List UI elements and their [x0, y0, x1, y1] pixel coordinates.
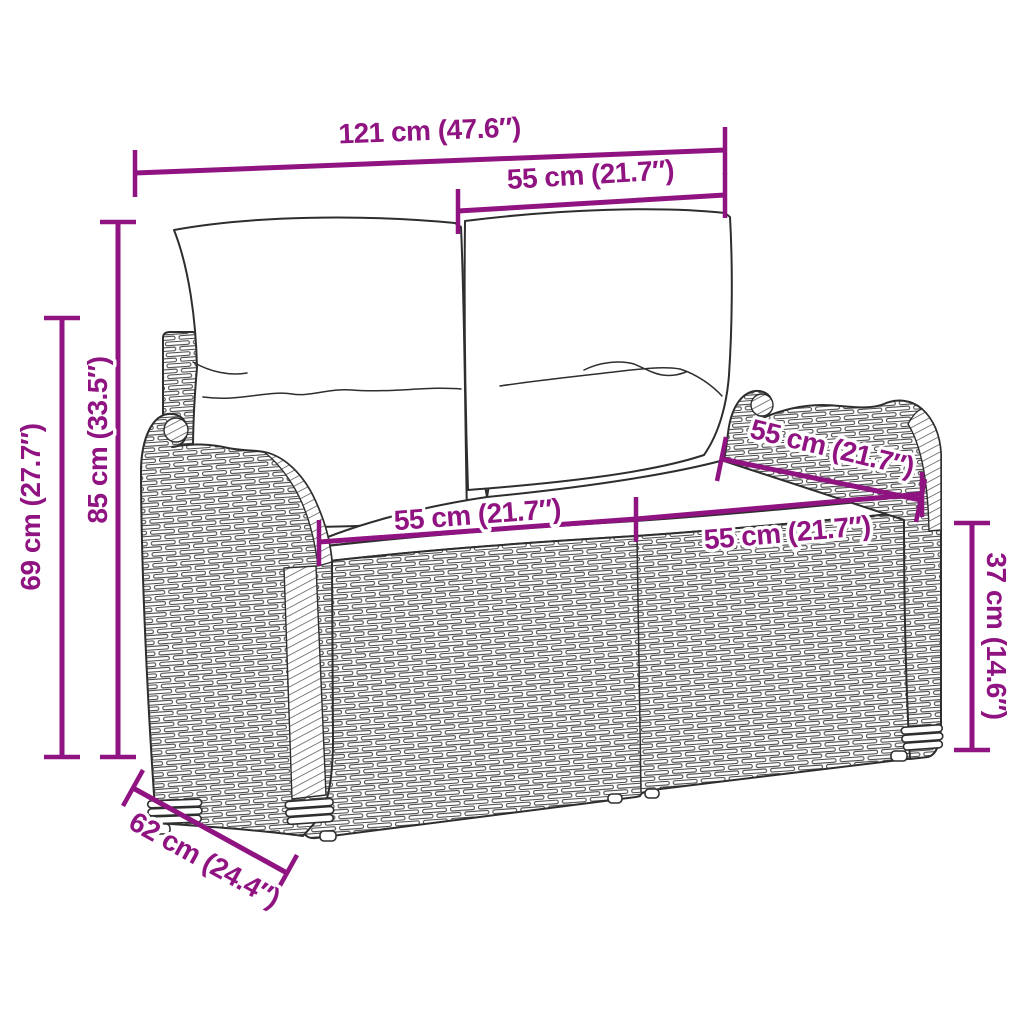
dim-backrest-cushion-width-label: 55 cm (21.7″)	[506, 154, 675, 195]
dim-seat-height-label: 37 cm (14.6″)	[981, 552, 1012, 719]
back-cushion-right	[465, 209, 732, 490]
dim-seat-height: 37 cm (14.6″)	[954, 523, 1012, 750]
dim-total-height-label: 85 cm (33.5″)	[82, 356, 113, 523]
dim-total-height: 85 cm (33.5″)	[82, 222, 136, 757]
sofa-foot	[608, 794, 622, 803]
sofa-foot	[320, 831, 336, 841]
dim-armrest-height-label: 69 cm (27.7″)	[15, 423, 46, 590]
base-front-panel	[303, 511, 926, 838]
left-armrest-scroll	[164, 418, 188, 442]
dim-overall-width-label: 121 cm (47.6″)	[338, 112, 521, 150]
front-left-corner-rails	[285, 798, 334, 824]
sofa-foot	[891, 751, 907, 761]
dim-armrest-height: 69 cm (27.7″)	[15, 318, 80, 757]
right-corner-rails	[901, 725, 944, 751]
sofa-foot	[645, 789, 659, 798]
product-dimension-diagram: 121 cm (47.6″) 55 cm (21.7″) 85 cm (33.5…	[0, 0, 1024, 1024]
garden-sofa-dimension-drawing: 121 cm (47.6″) 55 cm (21.7″) 85 cm (33.5…	[0, 0, 1024, 1024]
